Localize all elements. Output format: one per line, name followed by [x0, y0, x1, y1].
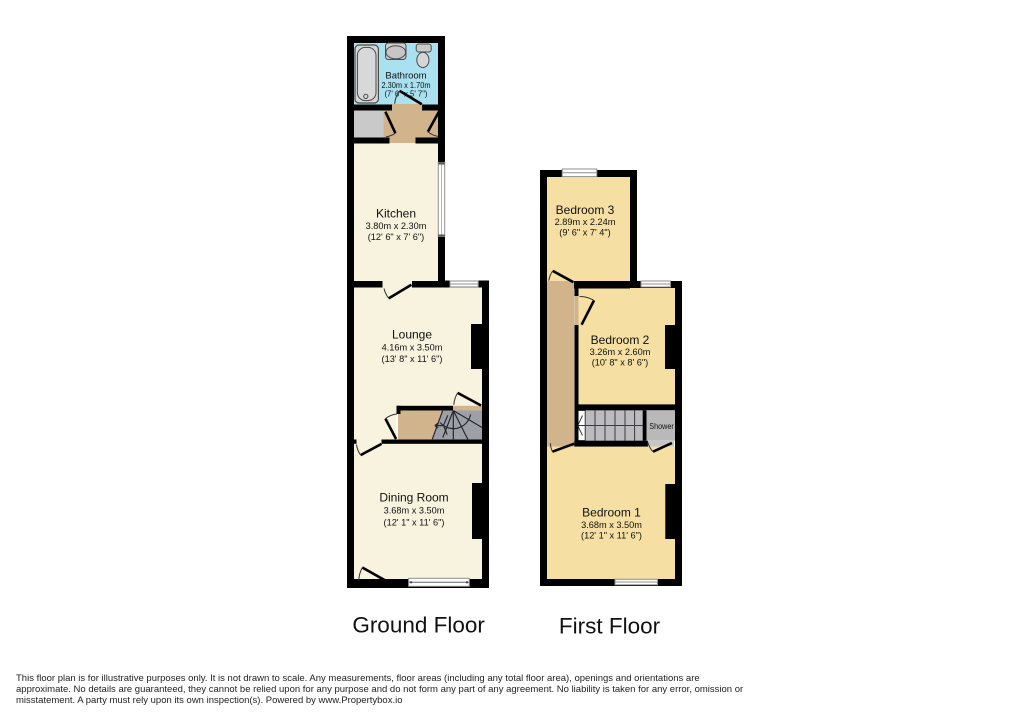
svg-text:approximate. No details are gu: approximate. No details are guaranteed, …: [16, 684, 743, 695]
svg-text:(10' 8" x 8' 6"): (10' 8" x 8' 6"): [592, 358, 649, 368]
svg-text:3.26m x 2.60m: 3.26m x 2.60m: [590, 347, 651, 357]
svg-text:(12' 1" x 11' 6"): (12' 1" x 11' 6"): [384, 518, 445, 528]
svg-text:3.68m x 3.50m: 3.68m x 3.50m: [384, 506, 445, 516]
svg-text:Ground Floor: Ground Floor: [352, 613, 485, 638]
svg-text:Bedroom 1: Bedroom 1: [582, 506, 641, 520]
svg-text:Kitchen: Kitchen: [376, 207, 416, 221]
svg-text:misstatement. A party must rel: misstatement. A party must rely upon its…: [16, 695, 403, 706]
svg-text:Bedroom 2: Bedroom 2: [591, 333, 650, 347]
svg-text:Lounge: Lounge: [392, 328, 432, 342]
svg-text:This floor plan is for illustr: This floor plan is for illustrative purp…: [16, 673, 700, 684]
svg-text:(9' 6" x 7' 4"): (9' 6" x 7' 4"): [559, 228, 610, 238]
svg-text:(13' 8" x 11' 6"): (13' 8" x 11' 6"): [382, 354, 443, 364]
svg-text:(12' 1" x 11' 6"): (12' 1" x 11' 6"): [581, 531, 642, 541]
svg-text:Shower: Shower: [649, 422, 674, 431]
svg-text:(7' 6" x 5' 7"): (7' 6" x 5' 7"): [385, 89, 428, 99]
svg-text:(12' 6" x 7' 6"): (12' 6" x 7' 6"): [368, 232, 425, 242]
svg-text:3.80m x 2.30m: 3.80m x 2.30m: [366, 221, 427, 231]
svg-text:4.16m x 3.50m: 4.16m x 3.50m: [382, 343, 443, 353]
svg-text:Bedroom 3: Bedroom 3: [556, 203, 615, 217]
svg-text:3.68m x 3.50m: 3.68m x 3.50m: [581, 520, 642, 530]
svg-text:Dining Room: Dining Room: [379, 491, 448, 505]
svg-text:2.89m x 2.24m: 2.89m x 2.24m: [555, 217, 616, 227]
svg-text:First Floor: First Floor: [559, 614, 661, 639]
